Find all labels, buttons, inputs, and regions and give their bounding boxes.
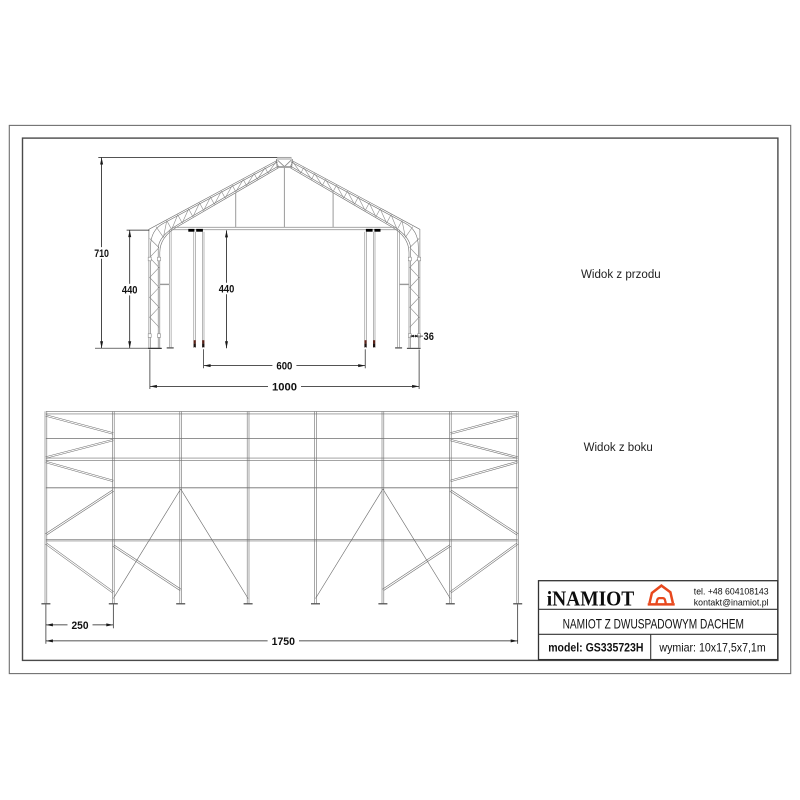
svg-text:kontakt@inamiot.pl: kontakt@inamiot.pl bbox=[694, 597, 769, 607]
svg-text:Widok z przodu: Widok z przodu bbox=[581, 267, 661, 281]
svg-text:tel. +48 604108143: tel. +48 604108143 bbox=[694, 586, 769, 596]
svg-text:440: 440 bbox=[122, 285, 138, 297]
svg-text:250: 250 bbox=[72, 620, 89, 632]
svg-text:model: GS335723H: model: GS335723H bbox=[548, 642, 643, 655]
svg-text:iNAMIOT: iNAMIOT bbox=[547, 587, 635, 611]
svg-text:1000: 1000 bbox=[272, 381, 297, 393]
svg-text:NAMIOT Z DWUSPADOWYM DACHEM: NAMIOT Z DWUSPADOWYM DACHEM bbox=[563, 616, 744, 631]
svg-text:440: 440 bbox=[219, 283, 235, 295]
svg-text:1750: 1750 bbox=[272, 636, 295, 648]
svg-text:36: 36 bbox=[424, 331, 434, 343]
svg-text:wymiar: 10x17,5x7,1m: wymiar: 10x17,5x7,1m bbox=[658, 642, 765, 655]
svg-text:600: 600 bbox=[276, 361, 292, 373]
svg-text:710: 710 bbox=[94, 248, 109, 260]
svg-text:Widok z boku: Widok z boku bbox=[584, 440, 653, 454]
